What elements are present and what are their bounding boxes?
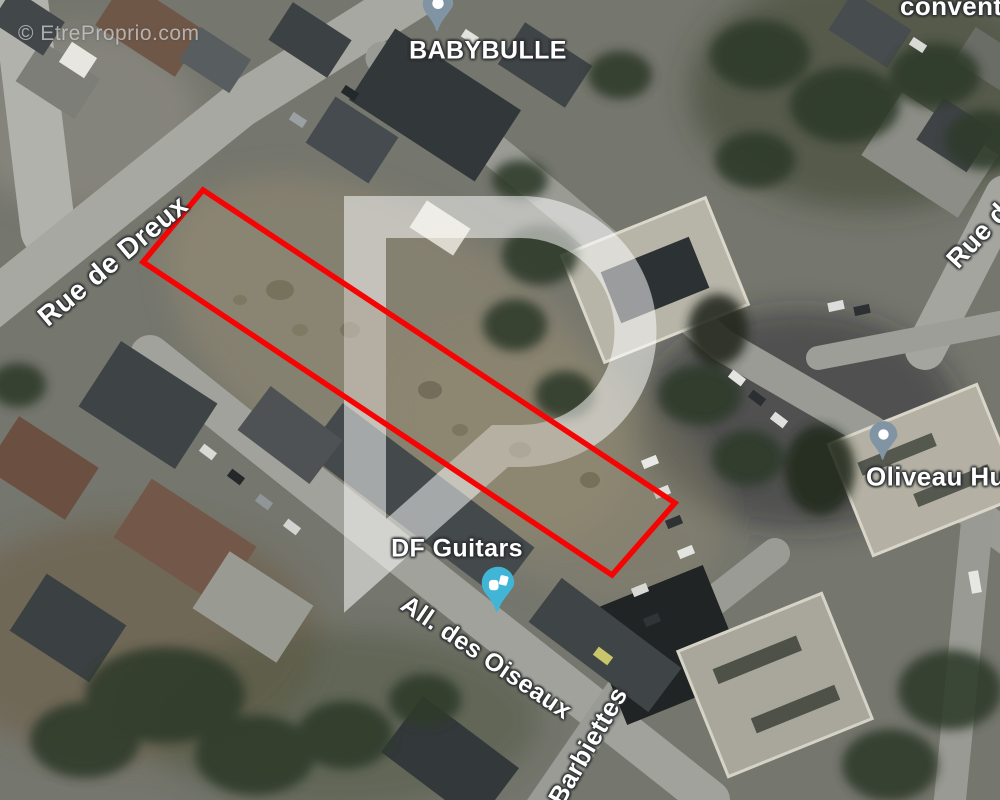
- place-pin-icon: [422, 0, 454, 33]
- place-label-babybulle[interactable]: BABYBULLE: [409, 37, 567, 66]
- place-label-oliveau[interactable]: Oliveau Hugu: [866, 462, 1000, 493]
- business-pin-icon: [481, 566, 515, 614]
- df-guitars-pin[interactable]: [481, 566, 515, 614]
- map-canvas: Rue de Dreux All. des Oiseaux Barbiettes…: [0, 0, 1000, 800]
- copyright-watermark: © EtreProprio.com: [18, 22, 200, 46]
- place-pin-icon: [869, 420, 898, 462]
- place-label-df-guitars[interactable]: DF Guitars: [391, 535, 523, 564]
- place-label-convention: conventio: [900, 0, 1000, 22]
- oliveau-pin[interactable]: [869, 420, 898, 462]
- babybulle-pin[interactable]: [422, 0, 454, 33]
